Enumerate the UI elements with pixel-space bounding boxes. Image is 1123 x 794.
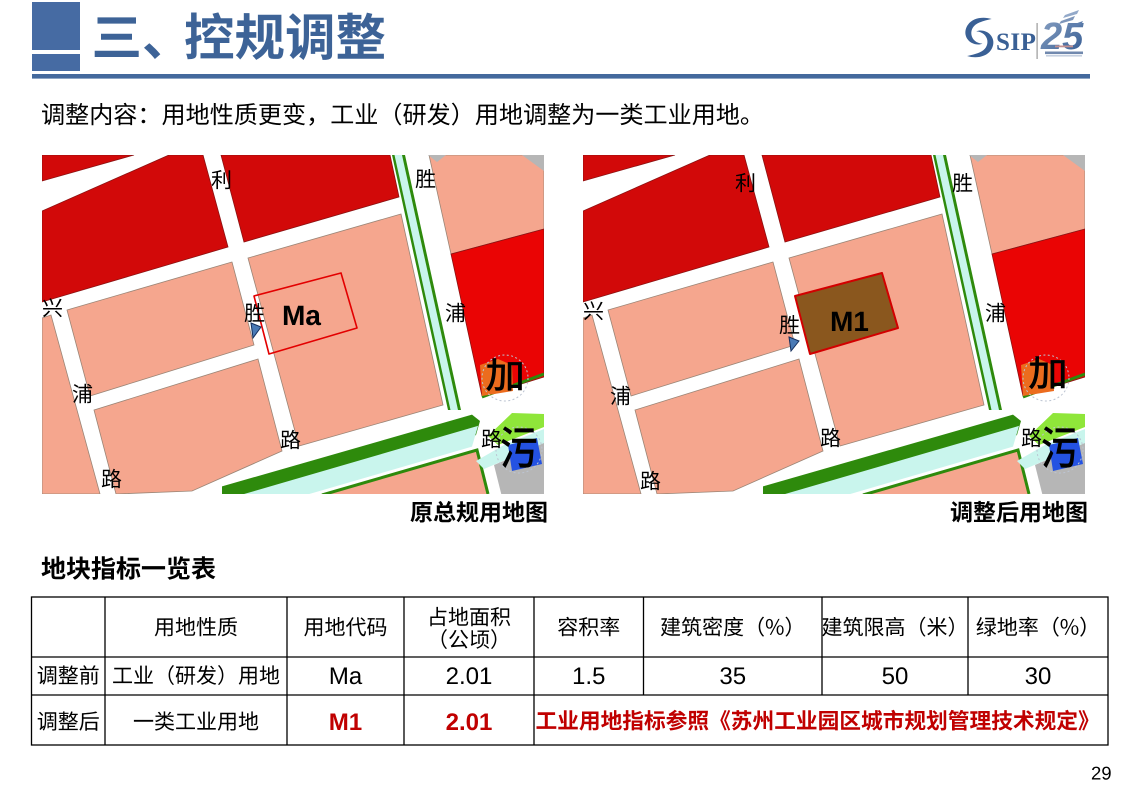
svg-text:SIP: SIP: [996, 29, 1036, 56]
